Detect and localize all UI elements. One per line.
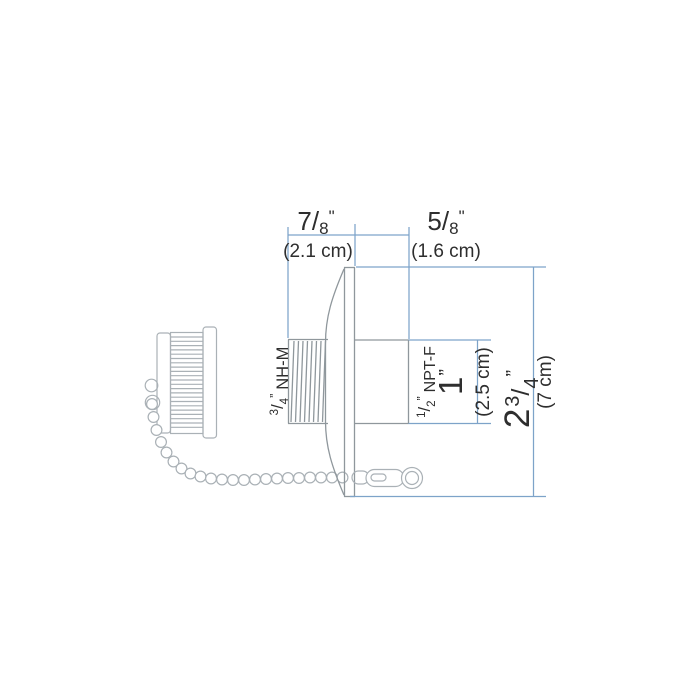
tab-body <box>366 470 404 487</box>
technical-diagram-canvas: 7/8" (2.1 cm) 5/8" (1.6 cm) 3/4”NH-M 1/2… <box>0 0 700 700</box>
dim-label-bore-inches: 1” <box>432 369 469 395</box>
dim-label-thread-width-inches: 7/8" <box>297 206 334 238</box>
cap-knurl-lines <box>171 337 204 427</box>
dim-label-npt-width-inches: 5/8" <box>427 206 464 238</box>
cap-outline <box>157 327 217 438</box>
chain-pull-tab <box>352 468 423 489</box>
ball-chain <box>147 399 348 486</box>
cap-end-disc <box>203 327 217 438</box>
adapter-body-outline <box>288 268 409 497</box>
female-outlet-section <box>355 340 409 424</box>
male-thread-label: 3/4”NH-M <box>268 347 292 416</box>
bell-curve <box>326 269 345 495</box>
dim-label-thread-width-metric: (2.1 cm) <box>283 241 353 262</box>
male-thread-section <box>288 340 328 424</box>
hose-cap-adapter-diagram: 7/8" (2.1 cm) 5/8" (1.6 cm) 3/4”NH-M 1/2… <box>0 0 700 700</box>
flange-disc <box>344 268 355 497</box>
dim-label-bore-metric: (2.5 cm) <box>473 347 494 417</box>
dim-label-npt-width-metric: (1.6 cm) <box>411 241 481 262</box>
thread-hatch-lines <box>291 341 326 422</box>
dimension-lines <box>288 224 546 497</box>
tab-ring-outer <box>402 468 423 489</box>
dim-label-overall-metric: (7 cm) <box>535 355 556 409</box>
